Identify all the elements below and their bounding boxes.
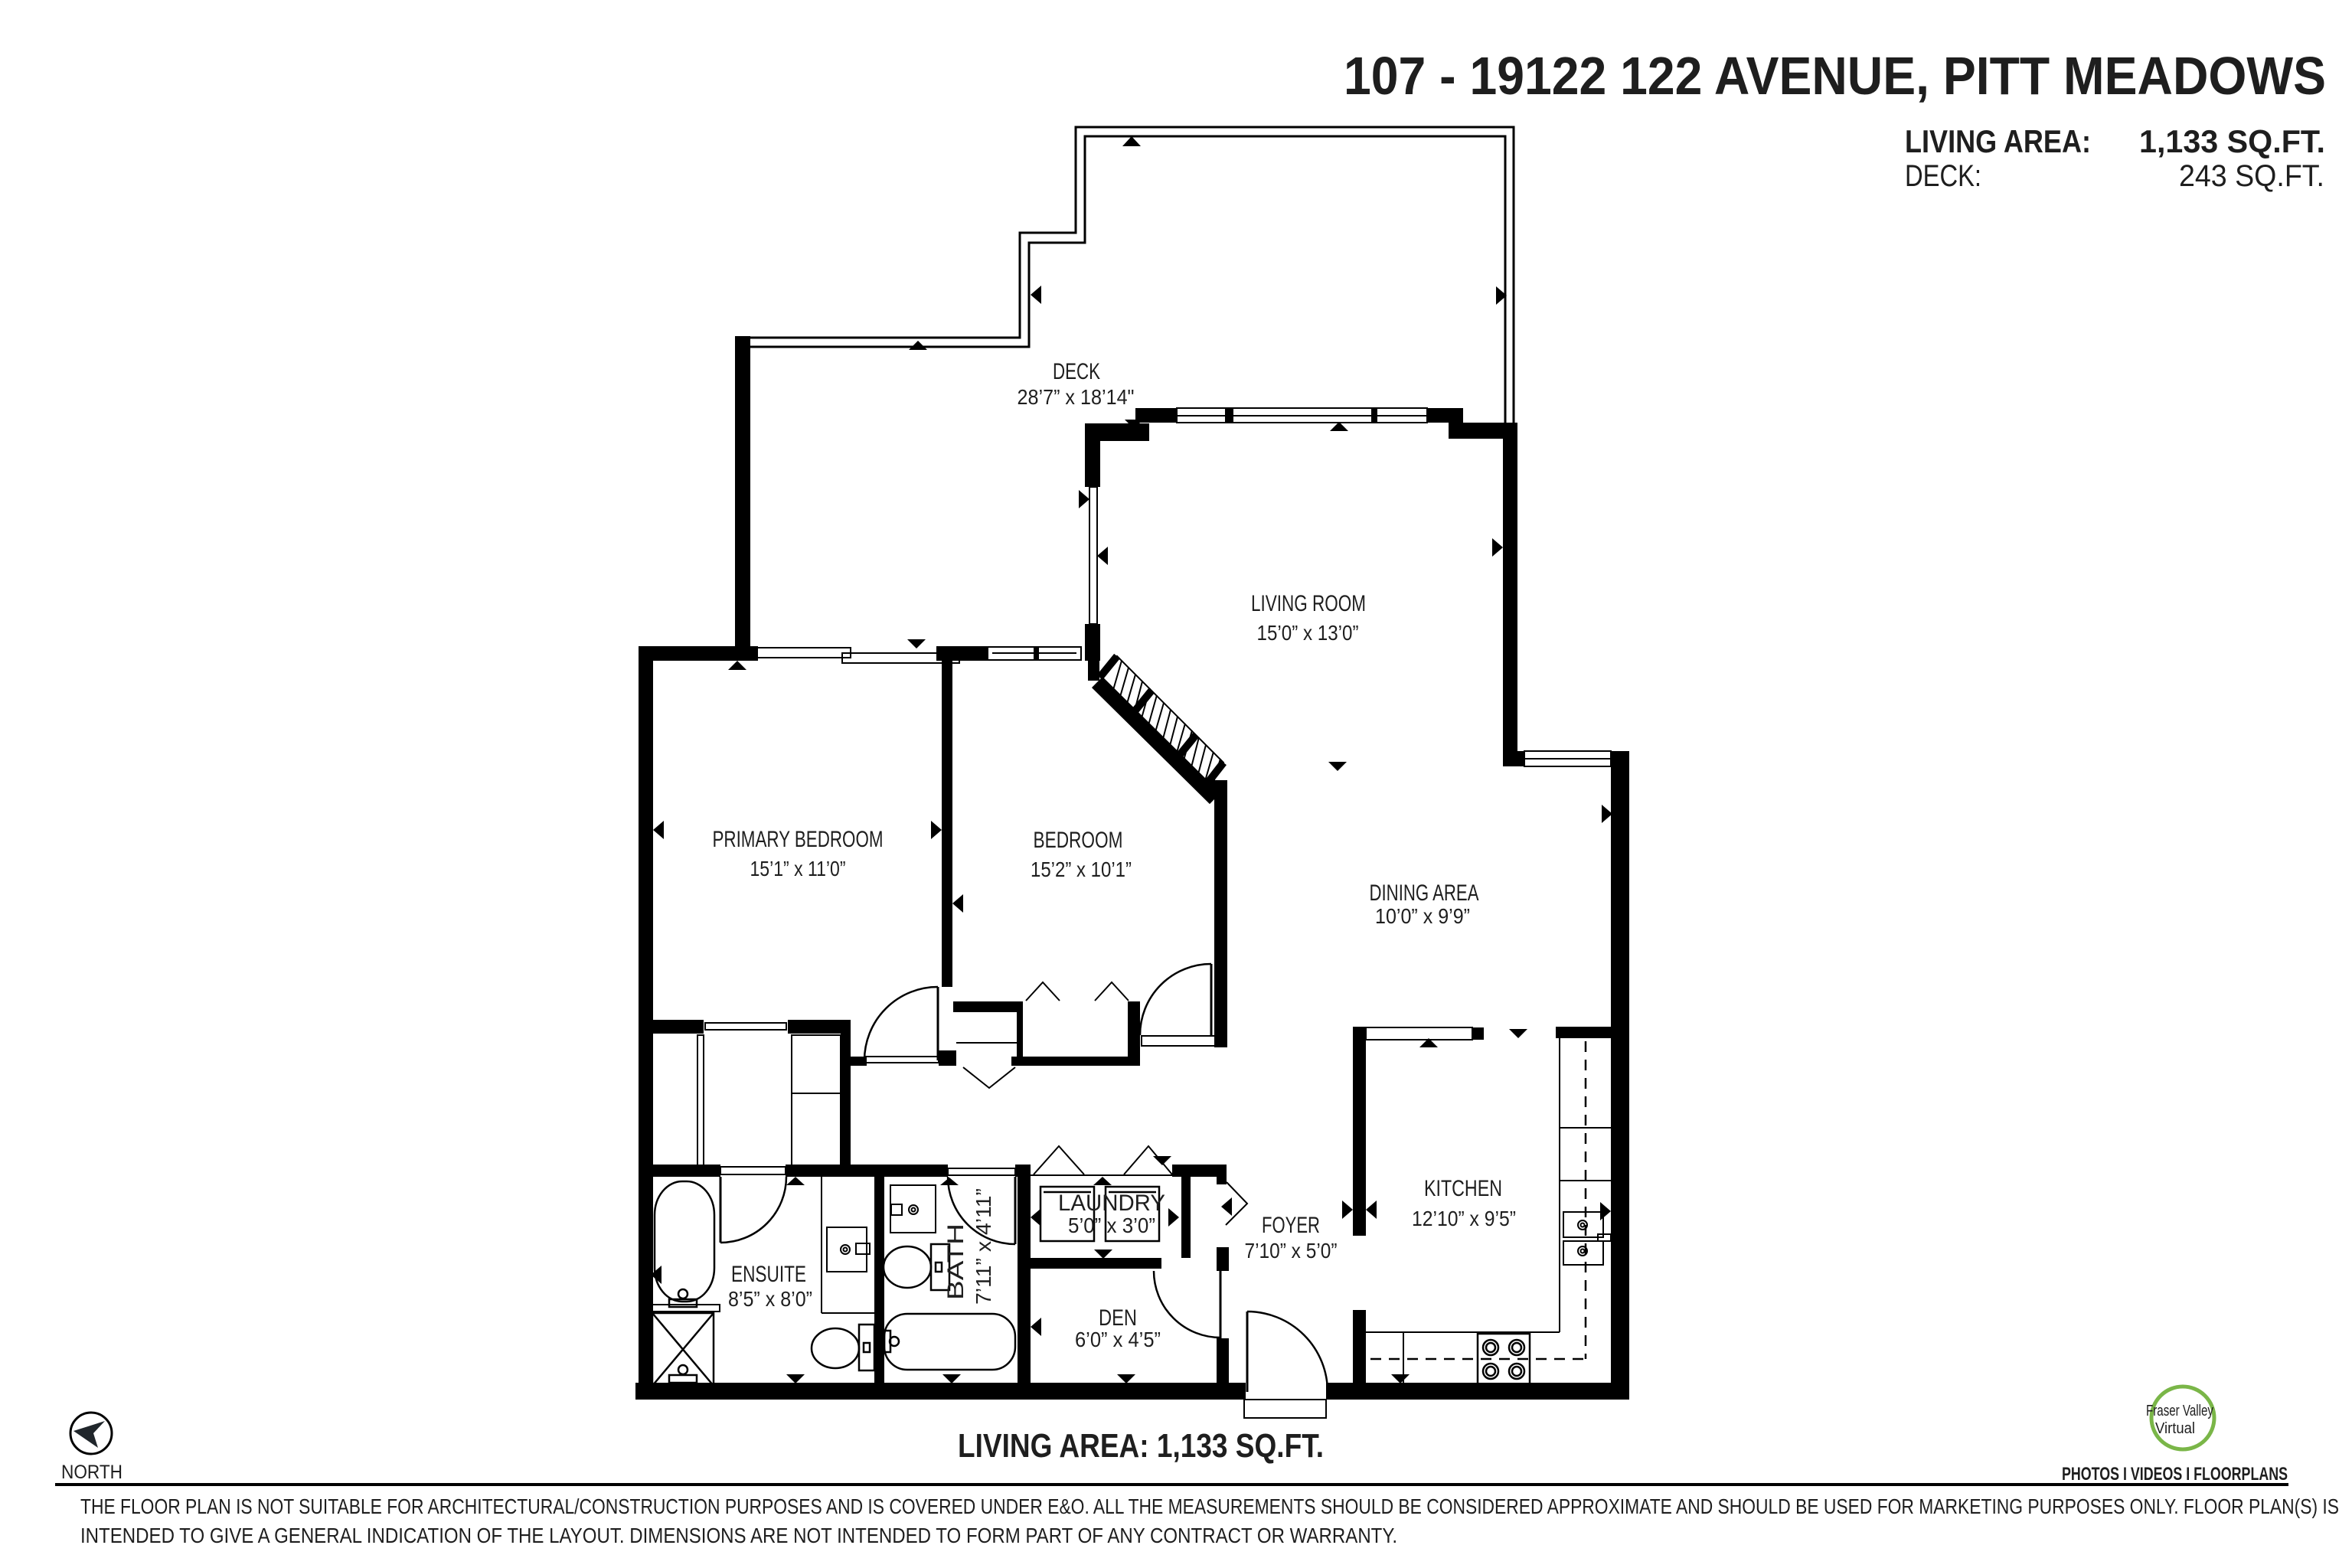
svg-text:NORTH: NORTH bbox=[61, 1462, 122, 1483]
svg-text:PRIMARY BEDROOM: PRIMARY BEDROOM bbox=[713, 827, 884, 852]
svg-text:LIVING ROOM: LIVING ROOM bbox=[1251, 591, 1366, 616]
svg-text:6’0” x 4’5”: 6’0” x 4’5” bbox=[1075, 1328, 1161, 1351]
svg-text:THE FLOOR PLAN IS NOT SUITABLE: THE FLOOR PLAN IS NOT SUITABLE FOR ARCHI… bbox=[80, 1494, 2339, 1518]
svg-text:LIVING AREA:: LIVING AREA: bbox=[1905, 123, 2091, 159]
svg-text:BEDROOM: BEDROOM bbox=[1034, 828, 1123, 853]
svg-text:BATH: BATH bbox=[943, 1223, 969, 1300]
svg-text:LAUNDRY: LAUNDRY bbox=[1058, 1191, 1165, 1216]
svg-text:8’5” x 8’0”: 8’5” x 8’0” bbox=[728, 1287, 812, 1311]
svg-text:LIVING AREA: 1,133 SQ.FT.: LIVING AREA: 1,133 SQ.FT. bbox=[958, 1427, 1324, 1465]
svg-text:15’2” x 10’1”: 15’2” x 10’1” bbox=[1031, 857, 1132, 881]
svg-text:10’0” x 9’9”: 10’0” x 9’9” bbox=[1375, 904, 1470, 928]
svg-text:7’10” x 5’0”: 7’10” x 5’0” bbox=[1245, 1239, 1338, 1263]
svg-text:PHOTOS I VIDEOS I FLOORPLANS: PHOTOS I VIDEOS I FLOORPLANS bbox=[2062, 1464, 2288, 1485]
svg-text:INTENDED TO GIVE A GENERAL IND: INTENDED TO GIVE A GENERAL INDICATION OF… bbox=[80, 1524, 1397, 1547]
svg-text:Fraser Valley: Fraser Valley bbox=[2146, 1403, 2213, 1419]
svg-text:12’10” x 9’5”: 12’10” x 9’5” bbox=[1412, 1207, 1516, 1230]
svg-text:7’11” x 4’11”: 7’11” x 4’11” bbox=[972, 1188, 995, 1305]
svg-text:DINING AREA: DINING AREA bbox=[1370, 880, 1479, 906]
svg-text:5’0” x 3’0”: 5’0” x 3’0” bbox=[1068, 1214, 1155, 1237]
svg-text:15’1” x 11’0”: 15’1” x 11’0” bbox=[750, 857, 846, 880]
svg-text:1,133 SQ.FT.: 1,133 SQ.FT. bbox=[2139, 123, 2325, 159]
svg-text:243 SQ.FT.: 243 SQ.FT. bbox=[2179, 159, 2324, 193]
svg-text:DECK: DECK bbox=[1053, 359, 1100, 384]
svg-text:28’7” x 18’14": 28’7” x 18’14" bbox=[1018, 385, 1135, 409]
svg-text:Virtual: Virtual bbox=[2155, 1420, 2195, 1437]
svg-text:DECK:: DECK: bbox=[1905, 159, 1981, 193]
svg-text:15’0” x 13’0”: 15’0” x 13’0” bbox=[1257, 621, 1359, 645]
svg-text:FOYER: FOYER bbox=[1262, 1213, 1320, 1238]
svg-text:KITCHEN: KITCHEN bbox=[1424, 1176, 1502, 1201]
svg-text:ENSUITE: ENSUITE bbox=[731, 1262, 806, 1287]
svg-text:107 - 19122 122 AVENUE, PITT M: 107 - 19122 122 AVENUE, PITT MEADOWS bbox=[1344, 46, 2326, 106]
